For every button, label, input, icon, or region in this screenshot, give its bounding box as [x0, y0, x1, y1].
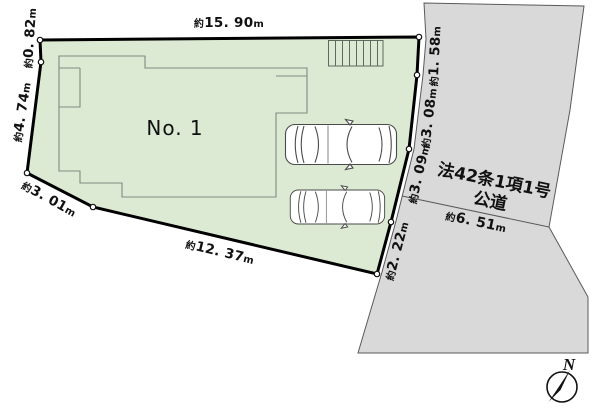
site-plan: 約15. 90m 約0. 82m 約4. 74m 約3. 01m 約12. 37…	[0, 0, 600, 410]
dimension-label-right-top: 約1. 58m	[425, 25, 444, 86]
dimension-label-top: 約15. 90m	[194, 15, 264, 31]
north-label: N	[563, 355, 575, 375]
car-2	[290, 186, 384, 229]
car-1	[286, 120, 397, 170]
plot-number-label: No. 1	[146, 116, 203, 140]
